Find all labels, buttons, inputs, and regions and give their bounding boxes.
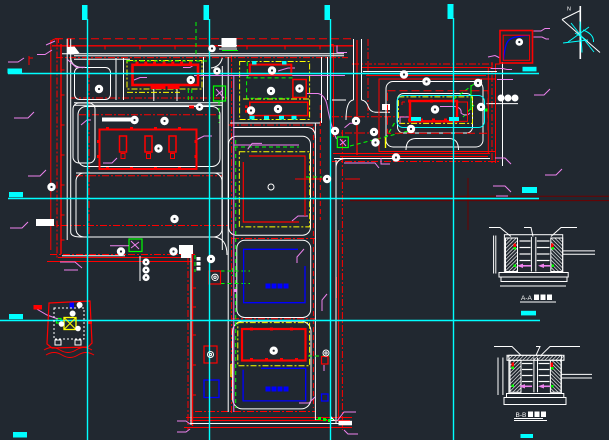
svg-text:B-B: B-B	[516, 412, 527, 419]
svg-text:A-A: A-A	[521, 295, 533, 302]
svg-text:N: N	[567, 7, 571, 13]
